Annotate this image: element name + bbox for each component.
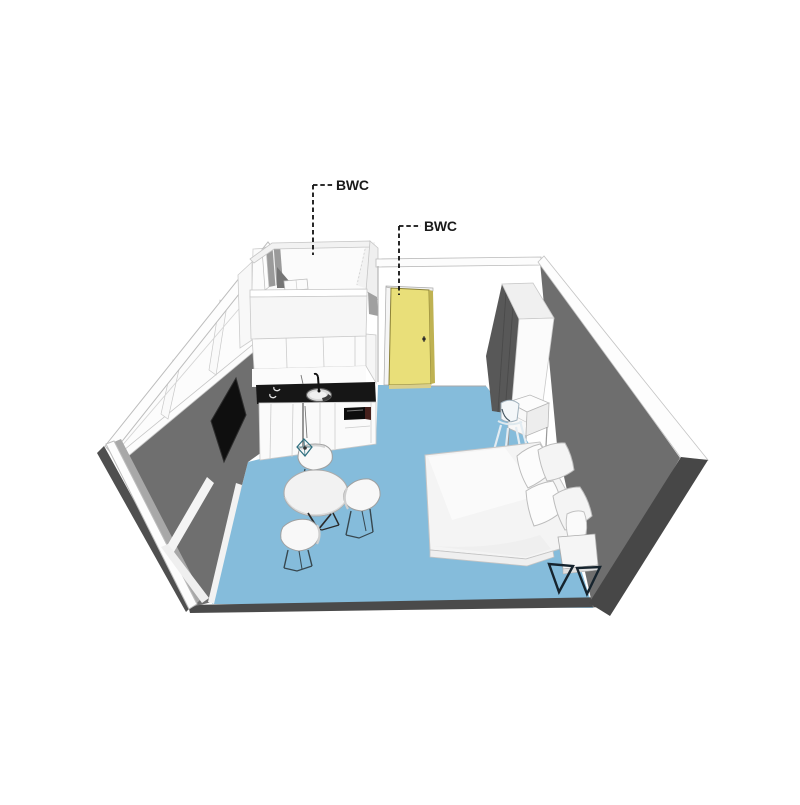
svg-text:BWC: BWC (336, 177, 369, 193)
svg-text:BWC: BWC (424, 218, 457, 234)
